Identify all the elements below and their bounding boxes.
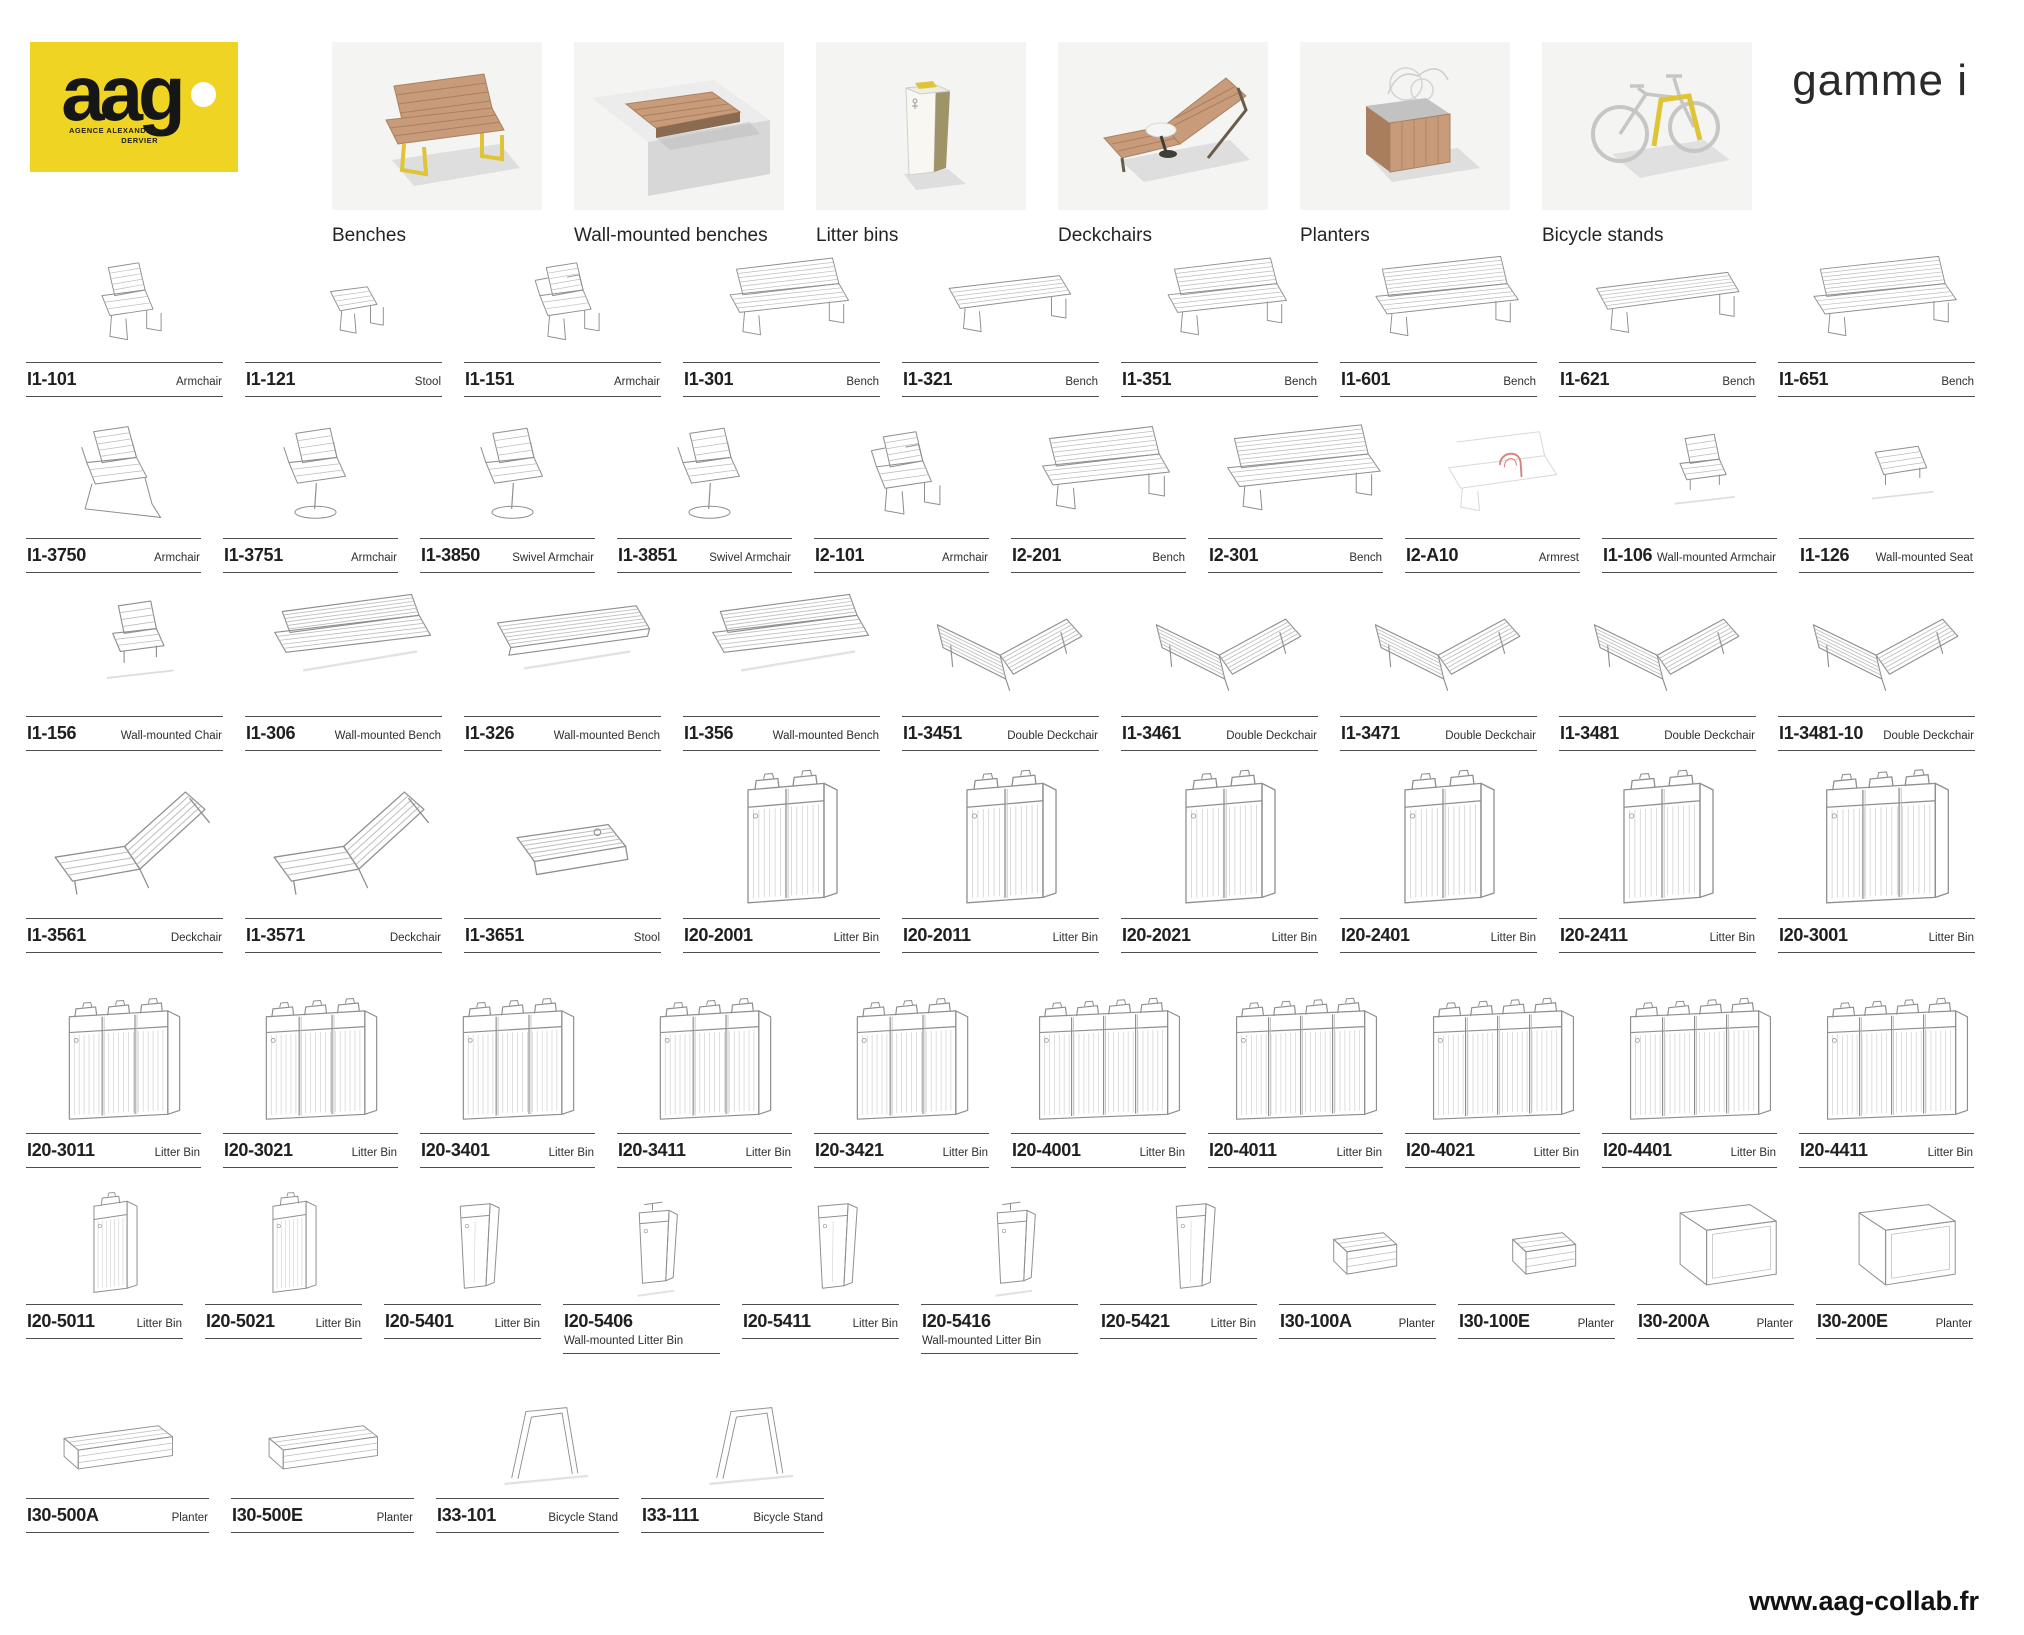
product-sketch — [26, 418, 223, 538]
product-cell-i20-4021[interactable]: I20-4021 Litter Bin — [1405, 981, 1602, 1168]
product-cell-i20-3411[interactable]: I20-3411 Litter Bin — [617, 981, 814, 1168]
planter-long-sketch-icon — [26, 1388, 231, 1498]
product-cell-i1-3451[interactable]: I1-3451 Double Deckchair — [902, 583, 1121, 751]
product-sketch — [26, 583, 245, 716]
product-cell-i1-356[interactable]: I1-356 Wall-mounted Bench — [683, 583, 902, 751]
product-cell-i20-2011[interactable]: I20-2011 Litter Bin — [902, 766, 1121, 953]
product-sketch — [1559, 766, 1778, 918]
product-cell-i20-3011[interactable]: I20-3011 Litter Bin — [26, 981, 223, 1168]
product-cell-i1-3750[interactable]: I1-3750 Armchair — [26, 418, 223, 573]
category-thumbnail — [1300, 42, 1510, 210]
product-cell-i1-3571[interactable]: I1-3571 Deckchair — [245, 766, 464, 953]
product-label: I1-351 Bench — [1121, 362, 1318, 397]
product-cell-i1-3481-10[interactable]: I1-3481-10 Double Deckchair — [1778, 583, 1997, 751]
product-type: Wall-mounted Armchair — [1657, 552, 1776, 564]
product-cell-i20-5406[interactable]: I20-5406 Wall-mounted Litter Bin — [563, 1188, 742, 1354]
product-label: I20-3411 Litter Bin — [617, 1133, 792, 1168]
product-cell-i1-321[interactable]: I1-321 Bench — [902, 250, 1121, 397]
category-thumbnail — [574, 42, 784, 210]
product-code: I1-321 — [903, 369, 952, 390]
product-cell-i1-601[interactable]: I1-601 Bench — [1340, 250, 1559, 397]
product-cell-i20-2001[interactable]: I20-2001 Litter Bin — [683, 766, 902, 953]
product-label: I2-201 Bench — [1011, 538, 1186, 573]
product-sketch — [1778, 250, 1997, 362]
bin4-sketch-icon — [1405, 981, 1602, 1133]
product-sketch — [742, 1188, 921, 1304]
bin3-sketch-icon — [617, 981, 814, 1133]
product-cell-i30-100e[interactable]: I30-100E Planter — [1458, 1188, 1637, 1339]
product-row-7: I30-500A Planter I30-500E Planter I33-10… — [26, 1388, 2024, 1533]
product-label: I20-2411 Litter Bin — [1559, 918, 1756, 953]
product-label: I20-4411 Litter Bin — [1799, 1133, 1974, 1168]
product-cell-i20-2401[interactable]: I20-2401 Litter Bin — [1340, 766, 1559, 953]
product-code: I1-3471 — [1341, 723, 1400, 744]
wall-bench-thumb-icon — [574, 42, 784, 210]
product-label: I20-4021 Litter Bin — [1405, 1133, 1580, 1168]
bin2-sketch-icon — [902, 766, 1121, 918]
product-type: Bench — [1722, 376, 1755, 388]
product-code: I20-4411 — [1800, 1140, 1868, 1161]
product-cell-i20-5021[interactable]: I20-5021 Litter Bin — [205, 1188, 384, 1339]
product-type: Bicycle Stand — [548, 1512, 618, 1524]
product-code: I1-3750 — [27, 545, 86, 566]
product-code: I1-126 — [1800, 545, 1849, 566]
product-cell-i1-3471[interactable]: I1-3471 Double Deckchair — [1340, 583, 1559, 751]
product-code: I1-3461 — [1122, 723, 1181, 744]
product-code: I20-4001 — [1012, 1140, 1081, 1161]
product-type: Bench — [1941, 376, 1974, 388]
product-sketch — [464, 250, 683, 362]
product-code: I2-301 — [1209, 545, 1258, 566]
product-code: I2-A10 — [1406, 545, 1458, 566]
product-row-6: I20-5011 Litter Bin I20-5021 Litter Bin … — [26, 1188, 2024, 1354]
product-row-1: I1-101 Armchair I1-121 Stool I1-151 Armc… — [26, 250, 2024, 397]
product-sketch — [223, 418, 420, 538]
product-label: I1-3851 Swivel Armchair — [617, 538, 792, 573]
product-sketch — [1121, 766, 1340, 918]
product-sketch — [1799, 418, 1996, 538]
product-type: Planter — [1578, 1318, 1614, 1330]
bench-sketch-icon — [683, 250, 902, 362]
product-label: I1-621 Bench — [1559, 362, 1756, 397]
product-cell-i1-3481[interactable]: I1-3481 Double Deckchair — [1559, 583, 1778, 751]
bin2-sketch-icon — [1340, 766, 1559, 918]
product-cell-i20-3401[interactable]: I20-3401 Litter Bin — [420, 981, 617, 1168]
product-cell-i1-306[interactable]: I1-306 Wall-mounted Bench — [245, 583, 464, 751]
product-label: I20-2401 Litter Bin — [1340, 918, 1537, 953]
bin4-sketch-icon — [1602, 981, 1799, 1133]
product-sketch — [1011, 981, 1208, 1133]
product-code: I20-3021 — [224, 1140, 293, 1161]
product-code: I30-100A — [1280, 1311, 1352, 1332]
product-type: Litter Bin — [549, 1147, 594, 1159]
bin-wall-sketch-icon — [563, 1188, 742, 1304]
bin2-sketch-icon — [1121, 766, 1340, 918]
product-sketch — [231, 1388, 436, 1498]
product-cell-i1-106[interactable]: I1-106 Wall-mounted Armchair — [1602, 418, 1799, 573]
product-code: I30-500E — [232, 1505, 303, 1526]
product-cell-i1-3461[interactable]: I1-3461 Double Deckchair — [1121, 583, 1340, 751]
product-sketch — [1405, 418, 1602, 538]
product-code: I1-101 — [27, 369, 76, 390]
product-type: Wall-mounted Bench — [773, 730, 879, 742]
product-type: Bench — [1065, 376, 1098, 388]
low-stool-sketch-icon — [464, 766, 683, 918]
product-label: I1-326 Wall-mounted Bench — [464, 716, 661, 751]
product-type: Wall-mounted Bench — [554, 730, 660, 742]
product-sketch — [464, 766, 683, 918]
product-label: I30-500A Planter — [26, 1498, 209, 1533]
product-code: I1-301 — [684, 369, 733, 390]
product-type: Wall-mounted Seat — [1876, 552, 1973, 564]
litter-bin-thumb-icon — [816, 42, 1026, 210]
product-sketch — [1602, 418, 1799, 538]
product-label: I1-101 Armchair — [26, 362, 223, 397]
product-cell-i30-200e[interactable]: I30-200E Planter — [1816, 1188, 1995, 1339]
product-cell-i20-2411[interactable]: I20-2411 Litter Bin — [1559, 766, 1778, 953]
product-type: Armchair — [351, 552, 397, 564]
product-type: Bench — [1152, 552, 1185, 564]
product-label: I20-5416 Wall-mounted Litter Bin — [921, 1304, 1078, 1354]
product-cell-i20-5421[interactable]: I20-5421 Litter Bin — [1100, 1188, 1279, 1339]
product-label: I1-121 Stool — [245, 362, 442, 397]
brand-logo-dot-icon — [191, 82, 216, 107]
product-code: I20-3001 — [1779, 925, 1848, 946]
product-type: Bench — [846, 376, 879, 388]
product-type: Bench — [1284, 376, 1317, 388]
product-cell-i1-151[interactable]: I1-151 Armchair — [464, 250, 683, 397]
double-deckchair-sketch-icon — [1559, 583, 1778, 716]
product-cell-i33-111[interactable]: I33-111 Bicycle Stand — [641, 1388, 846, 1533]
product-cell-i1-3850[interactable]: I1-3850 Swivel Armchair — [420, 418, 617, 573]
product-cell-i30-100a[interactable]: I30-100A Planter — [1279, 1188, 1458, 1339]
product-code: I33-101 — [437, 1505, 496, 1526]
product-sketch — [1405, 981, 1602, 1133]
product-label: I30-200E Planter — [1816, 1304, 1973, 1339]
product-label: I1-651 Bench — [1778, 362, 1975, 397]
product-code: I20-5411 — [743, 1311, 811, 1332]
product-sketch — [1799, 981, 1996, 1133]
bin2-sketch-icon — [683, 766, 902, 918]
product-cell-i1-101[interactable]: I1-101 Armchair — [26, 250, 245, 397]
product-type: Armchair — [614, 376, 660, 388]
product-code: I20-2401 — [1341, 925, 1410, 946]
product-label: I20-2011 Litter Bin — [902, 918, 1099, 953]
product-label: I1-126 Wall-mounted Seat — [1799, 538, 1974, 573]
product-cell-i1-156[interactable]: I1-156 Wall-mounted Chair — [26, 583, 245, 751]
product-sketch — [563, 1188, 742, 1304]
product-label: I2-A10 Armrest — [1405, 538, 1580, 573]
wall-bench-flat-sketch-icon — [464, 583, 683, 716]
product-cell-i2-101[interactable]: I2-101 Armchair — [814, 418, 1011, 573]
category-label: Litter bins — [816, 225, 1026, 247]
range-title: gamme i — [1792, 56, 1968, 106]
swivel-sketch-icon — [420, 418, 617, 538]
wall-chair-sketch-icon — [1602, 418, 1799, 538]
product-code: I1-3851 — [618, 545, 677, 566]
product-label: I30-100E Planter — [1458, 1304, 1615, 1339]
category-label: Wall-mounted benches — [574, 225, 784, 247]
product-sketch — [1559, 583, 1778, 716]
product-cell-i30-500a[interactable]: I30-500A Planter — [26, 1388, 231, 1533]
product-type: Planter — [377, 1512, 413, 1524]
product-type: Wall-mounted Litter Bin — [922, 1335, 1041, 1347]
bin3-sketch-icon — [814, 981, 1011, 1133]
brand-logo: aag agence alexandra dervier — [30, 42, 238, 172]
product-cell-i20-4401[interactable]: I20-4401 Litter Bin — [1602, 981, 1799, 1168]
product-cell-i2-201[interactable]: I2-201 Bench — [1011, 418, 1208, 573]
product-cell-i30-500e[interactable]: I30-500E Planter — [231, 1388, 436, 1533]
product-code: I1-351 — [1122, 369, 1171, 390]
product-code: I1-3481-10 — [1779, 723, 1863, 744]
product-type: Litter Bin — [834, 932, 879, 944]
product-label: I1-306 Wall-mounted Bench — [245, 716, 442, 751]
product-type: Litter Bin — [853, 1318, 898, 1330]
bin-slim-sketch-icon — [742, 1188, 921, 1304]
product-sketch — [1816, 1188, 1995, 1304]
product-cell-i1-3561[interactable]: I1-3561 Deckchair — [26, 766, 245, 953]
product-code: I1-3571 — [246, 925, 305, 946]
bin1-sketch-icon — [26, 1188, 205, 1304]
product-sketch — [205, 1188, 384, 1304]
bench-sketch-icon — [1011, 418, 1208, 538]
product-cell-i1-651[interactable]: I1-651 Bench — [1778, 250, 1997, 397]
bin3-sketch-icon — [1778, 766, 1997, 918]
product-label: I33-111 Bicycle Stand — [641, 1498, 824, 1533]
planter-small-sketch-icon — [1458, 1188, 1637, 1304]
product-cell-i1-301[interactable]: I1-301 Bench — [683, 250, 902, 397]
product-label: I20-5406 Wall-mounted Litter Bin — [563, 1304, 720, 1354]
product-label: I1-601 Bench — [1340, 362, 1537, 397]
product-code: I30-100E — [1459, 1311, 1530, 1332]
product-sketch — [641, 1388, 846, 1498]
product-code: I20-3011 — [27, 1140, 95, 1161]
product-code: I1-356 — [684, 723, 733, 744]
product-cell-i1-3751[interactable]: I1-3751 Armchair — [223, 418, 420, 573]
product-label: I1-3471 Double Deckchair — [1340, 716, 1537, 751]
product-sketch — [1011, 418, 1208, 538]
wall-seat-sketch-icon — [1799, 418, 1996, 538]
planter-large-sketch-icon — [1816, 1188, 1995, 1304]
product-sketch — [1340, 250, 1559, 362]
product-row-3: I1-156 Wall-mounted Chair I1-306 Wall-mo… — [26, 583, 2024, 751]
product-label: I20-5021 Litter Bin — [205, 1304, 362, 1339]
product-sketch — [245, 250, 464, 362]
product-cell-i20-5411[interactable]: I20-5411 Litter Bin — [742, 1188, 921, 1339]
wall-bench-sketch-icon — [245, 583, 464, 716]
product-label: I1-3481-10 Double Deckchair — [1778, 716, 1975, 751]
product-code: I20-5011 — [27, 1311, 95, 1332]
wall-chair-sketch-icon — [26, 583, 245, 716]
product-code: I1-3751 — [224, 545, 283, 566]
product-sketch — [1208, 418, 1405, 538]
product-cell-i20-5416[interactable]: I20-5416 Wall-mounted Litter Bin — [921, 1188, 1100, 1354]
product-cell-i20-3421[interactable]: I20-3421 Litter Bin — [814, 981, 1011, 1168]
product-sketch — [683, 766, 902, 918]
deckchair-sketch-icon — [26, 766, 245, 918]
product-type: Litter Bin — [495, 1318, 540, 1330]
product-cell-i1-121[interactable]: I1-121 Stool — [245, 250, 464, 397]
product-code: I20-3421 — [815, 1140, 884, 1161]
product-label: I1-106 Wall-mounted Armchair — [1602, 538, 1777, 573]
product-type: Planter — [1399, 1318, 1435, 1330]
product-sketch — [617, 981, 814, 1133]
product-row-5: I20-3011 Litter Bin I20-3021 Litter Bin … — [26, 981, 2024, 1168]
product-code: I1-3651 — [465, 925, 524, 946]
product-label: I1-151 Armchair — [464, 362, 661, 397]
category-tile-wall-mounted-benches[interactable]: Wall-mounted benches — [574, 42, 784, 247]
website-url[interactable]: www.aag-collab.fr — [1749, 1586, 1979, 1617]
product-type: Litter Bin — [1272, 932, 1317, 944]
product-sketch — [464, 583, 683, 716]
product-cell-i20-4011[interactable]: I20-4011 Litter Bin — [1208, 981, 1405, 1168]
product-cell-i1-326[interactable]: I1-326 Wall-mounted Bench — [464, 583, 683, 751]
product-code: I1-3561 — [27, 925, 86, 946]
product-type: Double Deckchair — [1007, 730, 1098, 742]
product-sketch — [683, 583, 902, 716]
product-cell-i2-301[interactable]: I2-301 Bench — [1208, 418, 1405, 573]
product-type: Litter Bin — [1337, 1147, 1382, 1159]
product-label: I1-3481 Double Deckchair — [1559, 716, 1756, 751]
category-tile-litter-bins[interactable]: Litter bins — [816, 42, 1026, 247]
bin4-sketch-icon — [1011, 981, 1208, 1133]
product-label: I20-4401 Litter Bin — [1602, 1133, 1777, 1168]
product-code: I20-3411 — [618, 1140, 686, 1161]
product-row-2: I1-3750 Armchair I1-3751 Armchair I1-385… — [26, 418, 2024, 573]
product-sketch — [902, 766, 1121, 918]
product-sketch — [245, 766, 464, 918]
planter-large-sketch-icon — [1637, 1188, 1816, 1304]
category-tile-deckchairs[interactable]: Deckchairs — [1058, 42, 1268, 247]
product-label: I20-4011 Litter Bin — [1208, 1133, 1383, 1168]
product-sketch — [436, 1388, 641, 1498]
product-code: I33-111 — [642, 1505, 699, 1526]
product-type: Litter Bin — [943, 1147, 988, 1159]
category-tile-benches[interactable]: Benches — [332, 42, 542, 247]
product-label: I1-3651 Stool — [464, 918, 661, 953]
product-label: I20-3401 Litter Bin — [420, 1133, 595, 1168]
product-label: I1-3561 Deckchair — [26, 918, 223, 953]
product-cell-i20-3001[interactable]: I20-3001 Litter Bin — [1778, 766, 1997, 953]
product-sketch — [902, 250, 1121, 362]
category-thumbnail — [332, 42, 542, 210]
product-label: I20-5011 Litter Bin — [26, 1304, 183, 1339]
lounge-sketch-icon — [26, 418, 223, 538]
product-cell-i33-101[interactable]: I33-101 Bicycle Stand — [436, 1388, 641, 1533]
product-type: Litter Bin — [137, 1318, 182, 1330]
product-type: Swivel Armchair — [512, 552, 594, 564]
product-sketch — [814, 418, 1011, 538]
product-code: I20-5406 — [564, 1311, 633, 1332]
product-type: Litter Bin — [1929, 932, 1974, 944]
product-code: I30-200E — [1817, 1311, 1888, 1332]
product-label: I20-3001 Litter Bin — [1778, 918, 1975, 953]
product-type: Stool — [415, 376, 441, 388]
product-code: I1-3850 — [421, 545, 480, 566]
product-code: I1-106 — [1603, 545, 1652, 566]
product-label: I30-200A Planter — [1637, 1304, 1794, 1339]
product-label: I1-3461 Double Deckchair — [1121, 716, 1318, 751]
product-sketch — [1340, 766, 1559, 918]
product-sketch — [26, 766, 245, 918]
bin3-sketch-icon — [26, 981, 223, 1133]
product-code: I1-3451 — [903, 723, 962, 744]
catalog-page: aag agence alexandra dervier Benches Wal… — [0, 0, 2024, 1635]
product-type: Armchair — [176, 376, 222, 388]
product-label: I30-500E Planter — [231, 1498, 414, 1533]
product-cell-i20-2021[interactable]: I20-2021 Litter Bin — [1121, 766, 1340, 953]
product-cell-i1-3651[interactable]: I1-3651 Stool — [464, 766, 683, 953]
product-cell-i20-4411[interactable]: I20-4411 Litter Bin — [1799, 981, 1996, 1168]
bin1-sketch-icon — [205, 1188, 384, 1304]
product-cell-i20-5011[interactable]: I20-5011 Litter Bin — [26, 1188, 205, 1339]
product-type: Double Deckchair — [1664, 730, 1755, 742]
product-label: I20-5421 Litter Bin — [1100, 1304, 1257, 1339]
product-label: I20-2021 Litter Bin — [1121, 918, 1318, 953]
product-type: Armchair — [154, 552, 200, 564]
product-label: I2-101 Armchair — [814, 538, 989, 573]
product-cell-i20-3021[interactable]: I20-3021 Litter Bin — [223, 981, 420, 1168]
product-label: I20-2001 Litter Bin — [683, 918, 880, 953]
bin-slim-sketch-icon — [384, 1188, 563, 1304]
product-sketch — [26, 1388, 231, 1498]
product-cell-i1-126[interactable]: I1-126 Wall-mounted Seat — [1799, 418, 1996, 573]
bicycle-stand-thumb-icon — [1542, 42, 1752, 210]
product-cell-i1-3851[interactable]: I1-3851 Swivel Armchair — [617, 418, 814, 573]
product-code: I20-5416 — [922, 1311, 991, 1332]
product-label: I20-5401 Litter Bin — [384, 1304, 541, 1339]
product-cell-i1-351[interactable]: I1-351 Bench — [1121, 250, 1340, 397]
product-sketch — [26, 1188, 205, 1304]
double-deckchair-sketch-icon — [1778, 583, 1997, 716]
product-sketch — [1121, 583, 1340, 716]
product-type: Litter Bin — [1053, 932, 1098, 944]
category-tile-bicycle-stands[interactable]: Bicycle stands — [1542, 42, 1752, 247]
product-label: I2-301 Bench — [1208, 538, 1383, 573]
bin2-sketch-icon — [1559, 766, 1778, 918]
product-code: I20-4011 — [1209, 1140, 1277, 1161]
product-sketch — [26, 981, 223, 1133]
product-sketch — [1458, 1188, 1637, 1304]
product-sketch — [245, 583, 464, 716]
product-sketch — [420, 418, 617, 538]
brand-logo-subtext-line2: dervier — [46, 136, 158, 146]
product-type: Litter Bin — [1534, 1147, 1579, 1159]
product-code: I20-3401 — [421, 1140, 490, 1161]
double-deckchair-sketch-icon — [1121, 583, 1340, 716]
product-sketch — [1637, 1188, 1816, 1304]
product-cell-i20-5401[interactable]: I20-5401 Litter Bin — [384, 1188, 563, 1339]
product-cell-i2-a10[interactable]: I2-A10 Armrest — [1405, 418, 1602, 573]
product-code: I20-2011 — [903, 925, 971, 946]
category-tiles: Benches Wall-mounted benches Litter bins — [332, 42, 1752, 247]
product-code: I1-601 — [1341, 369, 1390, 390]
category-tile-planters[interactable]: Planters — [1300, 42, 1510, 247]
product-code: I1-121 — [246, 369, 295, 390]
product-cell-i30-200a[interactable]: I30-200A Planter — [1637, 1188, 1816, 1339]
product-type: Deckchair — [390, 932, 441, 944]
product-code: I20-5401 — [385, 1311, 454, 1332]
product-code: I20-2021 — [1122, 925, 1191, 946]
bench-long-sketch-icon — [1778, 250, 1997, 362]
product-code: I20-2411 — [1560, 925, 1628, 946]
product-cell-i20-4001[interactable]: I20-4001 Litter Bin — [1011, 981, 1208, 1168]
product-code: I20-5021 — [206, 1311, 275, 1332]
product-type: Litter Bin — [155, 1147, 200, 1159]
product-sketch — [1778, 766, 1997, 918]
product-label: I1-301 Bench — [683, 362, 880, 397]
product-cell-i1-621[interactable]: I1-621 Bench — [1559, 250, 1778, 397]
